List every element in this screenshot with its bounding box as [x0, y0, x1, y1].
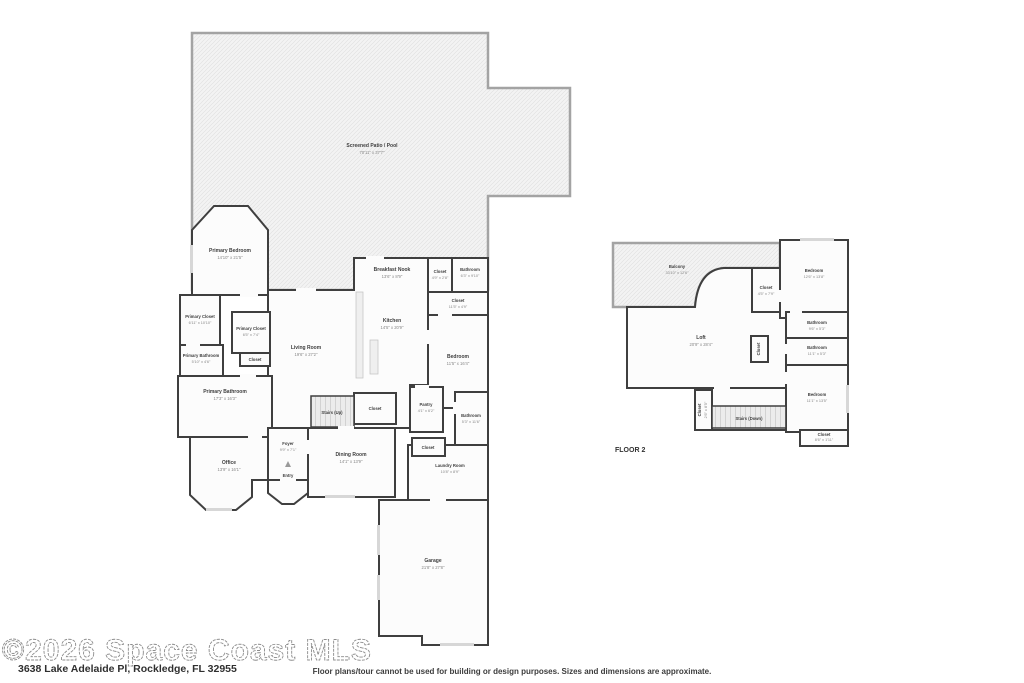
balcony-dims: 33'10" x 12'6" [666, 271, 690, 275]
entry-porch-shape [268, 480, 308, 504]
f2-bedroom-right-label: Bedroom [808, 392, 827, 397]
closet-stairs-label: Closet [369, 406, 382, 411]
loft-label: Loft [696, 335, 706, 341]
breakfast-nook-dims: 13'6" x 8'9" [382, 274, 403, 279]
room-closet-top-small [428, 258, 452, 292]
primary-closet1-label: Primary Closet [185, 314, 215, 319]
balcony-label: Balcony [669, 264, 686, 269]
room-office [190, 437, 268, 510]
kitchen-counter [356, 292, 363, 378]
door-gap [714, 386, 730, 390]
bathroom-top-label: Bathroom [460, 267, 480, 272]
f2-closet-top-label: Closet [760, 285, 773, 290]
closet-hall-label: Closet [452, 298, 465, 303]
door-gap [430, 498, 446, 502]
window-mark [846, 385, 849, 413]
primary-bedroom-dims: 14'10" x 21'5" [217, 255, 243, 260]
kitchen-island [370, 340, 378, 374]
closet-top-small-dims: 4'9" x 2'8" [432, 276, 449, 280]
room-f2-bathroom-top [786, 312, 848, 338]
primary-closet2-dims: 6'5" x 7'4" [243, 333, 260, 337]
patio-dims: 70'11" x 37'7" [360, 150, 385, 155]
foyer-label: Foyer [282, 441, 294, 446]
living-room-dims: 19'6" x 27'2" [295, 352, 318, 357]
patio-label: Screened Patio / Pool [346, 143, 398, 149]
f2-closet-left-dims: 2'6" x 8'5" [704, 401, 708, 418]
bedroom-dims: 11'5" x 16'4" [447, 361, 470, 366]
floorplan-canvas: Screened Patio / Pool 70'11" x 37'7" Pri… [0, 0, 1024, 683]
door-gap [415, 385, 429, 389]
primary-closet1-dims: 6'11" x 10'10" [189, 321, 212, 325]
closet-top-small-label: Closet [434, 269, 447, 274]
laundry-room-label: Laundry Room [435, 463, 465, 468]
floorplan-page: Screened Patio / Pool 70'11" x 37'7" Pri… [0, 0, 1024, 683]
door-gap [280, 478, 296, 482]
bathroom-hall-dims: 5'3" x 11'6" [462, 420, 481, 424]
f2-closet-top-dims: 4'5" x 7'9" [758, 292, 775, 296]
loft-dims: 20'9" x 28'4" [690, 342, 713, 347]
garage-dims: 21'8" x 27'8" [422, 565, 445, 570]
breakfast-nook-label: Breakfast Nook [374, 267, 411, 273]
closet-hall-dims: 11'5" x 4'9" [449, 305, 468, 309]
foyer-dims: 9'9" x 7'1" [280, 448, 297, 452]
window-mark [206, 508, 232, 511]
door-gap [338, 426, 354, 430]
room-closet-hall [428, 292, 488, 315]
door-gap [438, 313, 452, 317]
room-bathroom-hall [455, 392, 488, 445]
f2-bathroom-mid-label: Bathroom [807, 345, 827, 350]
door-gap [790, 310, 802, 314]
f2-closet-mid-label: Closet [756, 342, 761, 355]
laundry-room-dims: 10'8" x 8'9" [441, 470, 460, 474]
stairs-down-label: Stairs (Down) [736, 416, 764, 421]
f2-bedroom-top-label: Bedroom [805, 268, 824, 273]
bathroom-top-dims: 6'3" x 9'10" [461, 274, 480, 278]
f2-closet-left-label: Closet [697, 403, 702, 416]
primary-bathroom-small-dims: 5'10" x 4'6" [192, 360, 211, 364]
office-dims: 13'9" x 16'1" [218, 467, 241, 472]
kitchen-label: Kitchen [383, 318, 401, 324]
room-garage [379, 500, 488, 645]
room-f2-closet-top [752, 268, 780, 312]
bedroom-label: Bedroom [447, 354, 470, 360]
window-mark [325, 495, 355, 498]
primary-closet2-label: Primary Closet [236, 326, 266, 331]
office-label: Office [222, 460, 236, 466]
f2-bathroom-top-dims: 9'6" x 5'3" [809, 327, 826, 331]
kitchen-dims: 14'5" x 20'9" [381, 325, 404, 330]
f2-bedroom-right-dims: 11'1" x 13'5" [807, 399, 828, 403]
f2-bedroom-top-dims: 12'6" x 13'8" [804, 275, 825, 279]
room-f2-bedroom-top [780, 240, 848, 318]
room-primary-bathroom [178, 376, 272, 437]
door-gap [248, 435, 262, 439]
door-gap [296, 288, 316, 292]
door-gap [453, 402, 457, 414]
f2-closet-bottom-label: Closet [818, 432, 831, 437]
window-mark [377, 525, 380, 555]
primary-bedroom-label: Primary Bedroom [209, 248, 252, 254]
door-gap [306, 440, 310, 454]
door-gap [784, 372, 788, 384]
window-mark [377, 575, 380, 600]
door-gap [366, 256, 384, 260]
stairs-up-label: Stairs (Up) [321, 410, 343, 415]
door-gap [426, 330, 430, 344]
living-room-label: Living Room [291, 345, 322, 351]
window-mark [190, 245, 193, 273]
door-gap [240, 293, 258, 297]
disclaimer-text: Floor plans/tour cannot be used for buil… [0, 667, 1024, 676]
dining-room-label: Dining Room [335, 452, 367, 458]
primary-bathroom-label: Primary Bathroom [203, 389, 247, 395]
closet-mid-label: Closet [249, 357, 262, 362]
entry-label: Entry [283, 473, 294, 478]
door-gap [778, 290, 782, 302]
dining-room-dims: 14'1" x 13'9" [340, 459, 363, 464]
primary-bathroom-small-label: Primary Bathroom [183, 353, 220, 358]
closet-hall2-label: Closet [422, 445, 435, 450]
bathroom-hall-label: Bathroom [461, 413, 481, 418]
door-gap [186, 343, 200, 347]
door-gap [240, 374, 256, 378]
room-primary-closet-1 [180, 295, 220, 345]
floor2-title: FLOOR 2 [615, 447, 645, 454]
f2-bathroom-top-label: Bathroom [807, 320, 827, 325]
door-gap [784, 344, 788, 354]
pantry-label: Pantry [419, 402, 433, 407]
window-mark [440, 643, 474, 646]
f2-bathroom-mid-dims: 11'1" x 5'3" [808, 352, 827, 356]
primary-bathroom-dims: 17'3" x 16'3" [214, 396, 237, 401]
garage-label: Garage [424, 558, 441, 564]
pantry-dims: 4'1" x 6'2" [418, 409, 435, 413]
f2-closet-bottom-dims: 8'6" x 1'11" [815, 438, 834, 442]
window-mark [800, 238, 834, 241]
